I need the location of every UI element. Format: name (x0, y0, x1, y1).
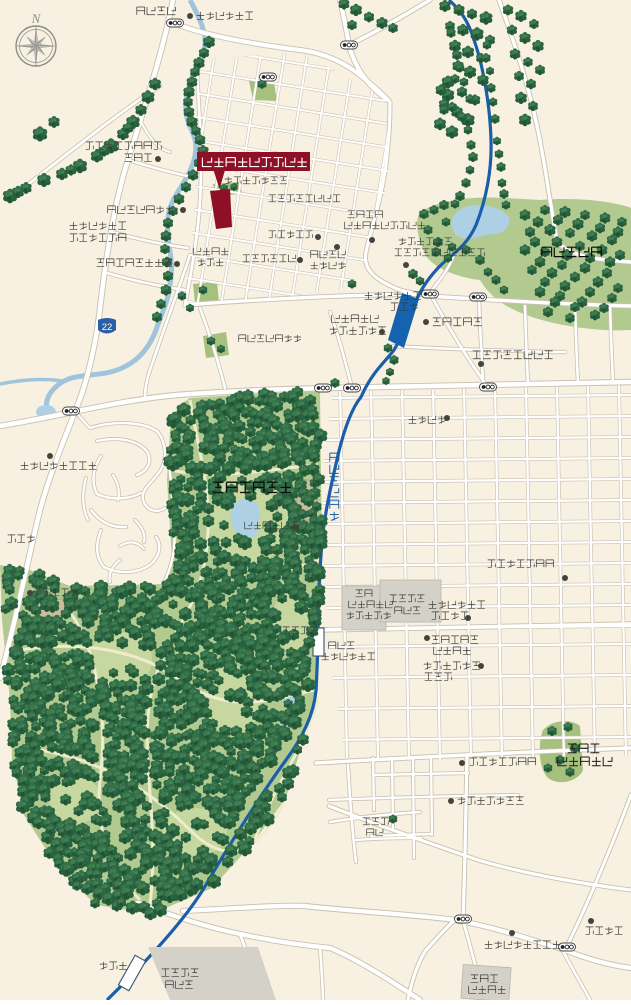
svg-text:N: N (31, 11, 42, 26)
svg-text:22: 22 (102, 322, 113, 333)
